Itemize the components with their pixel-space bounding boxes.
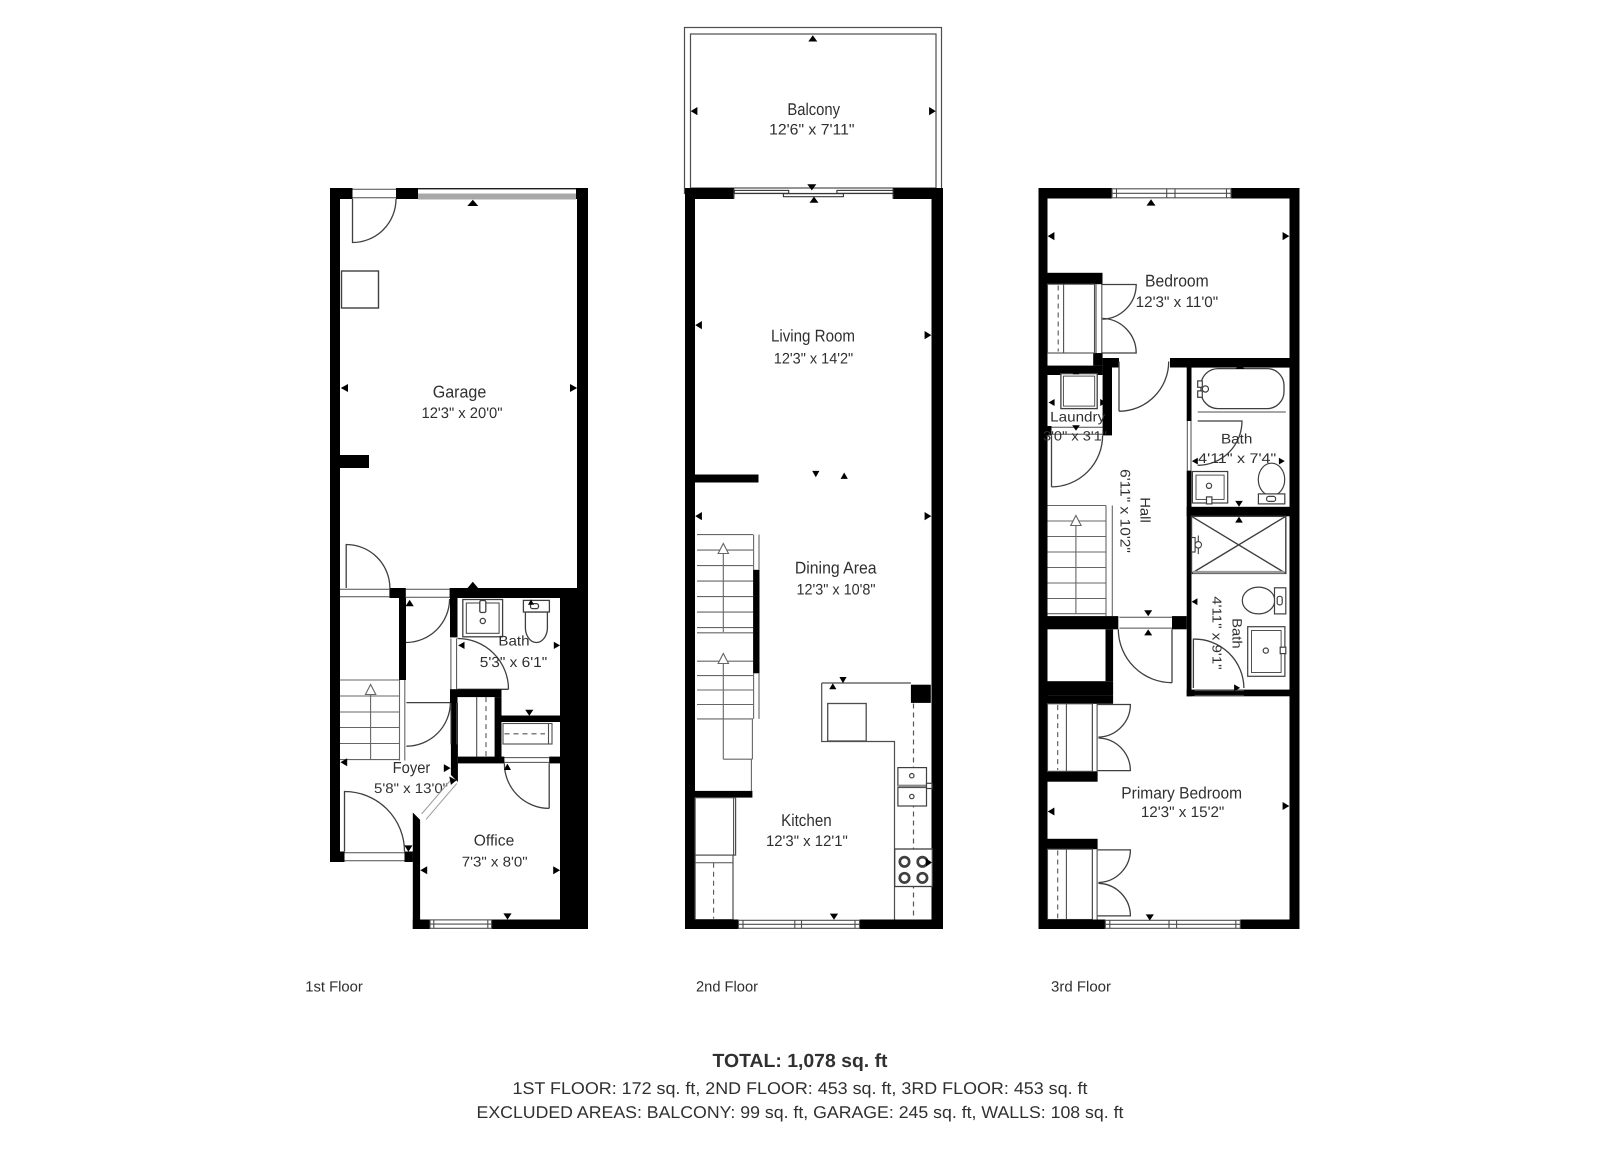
svg-text:7'3" x 8'0": 7'3" x 8'0" xyxy=(462,854,528,870)
svg-text:Balcony: Balcony xyxy=(787,100,840,119)
svg-text:1st Floor: 1st Floor xyxy=(305,980,363,996)
svg-text:Office: Office xyxy=(474,833,515,850)
svg-text:Bath: Bath xyxy=(1229,618,1244,649)
svg-text:Bedroom: Bedroom xyxy=(1145,271,1209,290)
svg-text:1ST FLOOR: 172 sq. ft, 2ND FLO: 1ST FLOOR: 172 sq. ft, 2ND FLOOR: 453 sq… xyxy=(513,1079,1088,1098)
svg-text:Kitchen: Kitchen xyxy=(781,811,832,830)
svg-text:4'11" x 9'1": 4'11" x 9'1" xyxy=(1210,596,1225,670)
svg-text:4'11" x 7'4": 4'11" x 7'4" xyxy=(1198,450,1276,466)
svg-text:3'0" x 3'1": 3'0" x 3'1" xyxy=(1043,428,1107,443)
svg-text:Living Room: Living Room xyxy=(771,327,855,346)
svg-text:Dining Area: Dining Area xyxy=(795,559,877,578)
svg-text:EXCLUDED AREAS: BALCONY: 99 sq: EXCLUDED AREAS: BALCONY: 99 sq. ft, GARA… xyxy=(477,1103,1124,1122)
svg-text:3rd Floor: 3rd Floor xyxy=(1051,980,1111,996)
svg-text:Laundry: Laundry xyxy=(1050,408,1105,424)
svg-text:2nd Floor: 2nd Floor xyxy=(696,980,758,996)
svg-text:5'3" x 6'1": 5'3" x 6'1" xyxy=(480,655,548,671)
svg-text:12'3" x 10'8": 12'3" x 10'8" xyxy=(797,582,876,599)
svg-text:12'3" x 14'2": 12'3" x 14'2" xyxy=(774,351,853,368)
svg-text:Bath: Bath xyxy=(1221,430,1252,446)
svg-text:Hall: Hall xyxy=(1138,497,1154,523)
svg-text:Foyer: Foyer xyxy=(393,760,431,777)
svg-text:Garage: Garage xyxy=(433,383,487,402)
svg-text:Bath: Bath xyxy=(498,632,529,648)
svg-text:12'3" x 20'0": 12'3" x 20'0" xyxy=(422,405,503,422)
svg-text:12'3" x 11'0": 12'3" x 11'0" xyxy=(1136,294,1219,311)
svg-text:TOTAL: 1,078 sq. ft: TOTAL: 1,078 sq. ft xyxy=(713,1051,889,1072)
svg-text:Primary Bedroom: Primary Bedroom xyxy=(1121,784,1242,802)
svg-text:12'3" x 12'1": 12'3" x 12'1" xyxy=(766,833,848,850)
svg-text:5'8" x 13'0": 5'8" x 13'0" xyxy=(374,780,448,796)
svg-text:6'11" x 10'2": 6'11" x 10'2" xyxy=(1117,469,1133,553)
svg-text:12'6" x 7'11": 12'6" x 7'11" xyxy=(769,122,854,139)
svg-text:12'3" x 15'2": 12'3" x 15'2" xyxy=(1141,804,1225,821)
